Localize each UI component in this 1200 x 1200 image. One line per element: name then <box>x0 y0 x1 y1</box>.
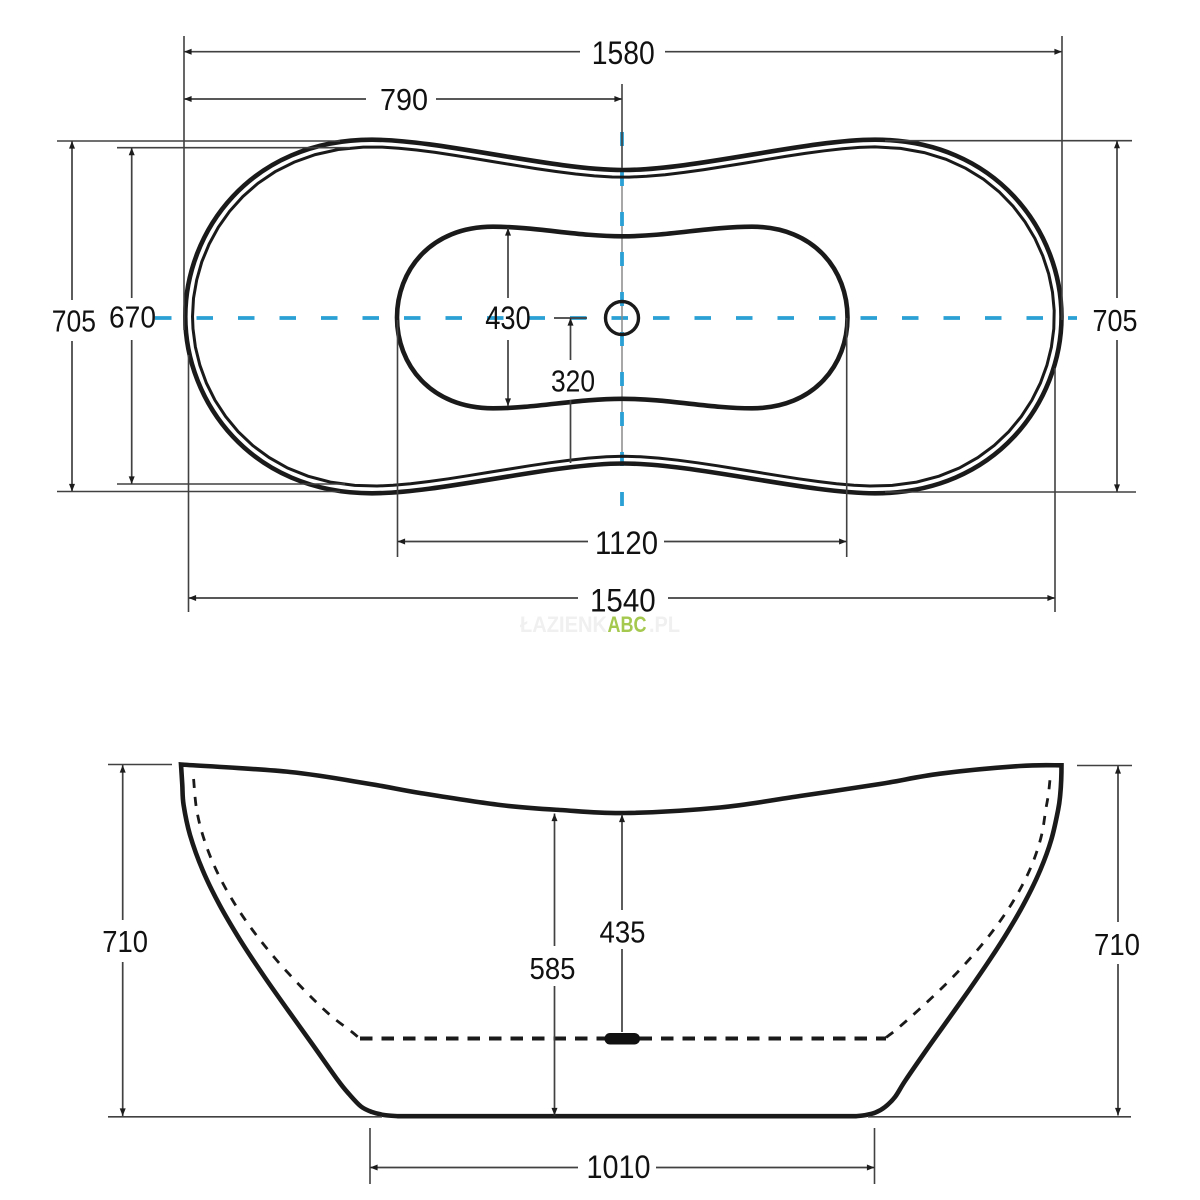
svg-text:430: 430 <box>485 300 531 336</box>
svg-text:710: 710 <box>1094 927 1140 962</box>
svg-text:705: 705 <box>1093 303 1138 338</box>
svg-text:320: 320 <box>551 364 595 399</box>
svg-text:.PL: .PL <box>649 612 680 637</box>
svg-text:1010: 1010 <box>587 1149 651 1185</box>
svg-text:670: 670 <box>109 300 156 335</box>
svg-text:705: 705 <box>52 304 96 339</box>
svg-text:790: 790 <box>380 82 428 117</box>
svg-text:ABC: ABC <box>608 612 647 637</box>
svg-text:1120: 1120 <box>595 525 658 561</box>
svg-text:ŁAZIENK: ŁAZIENK <box>520 612 607 637</box>
svg-text:585: 585 <box>530 951 576 986</box>
svg-text:710: 710 <box>102 924 148 959</box>
svg-text:1580: 1580 <box>592 35 655 71</box>
svg-text:435: 435 <box>600 915 646 950</box>
